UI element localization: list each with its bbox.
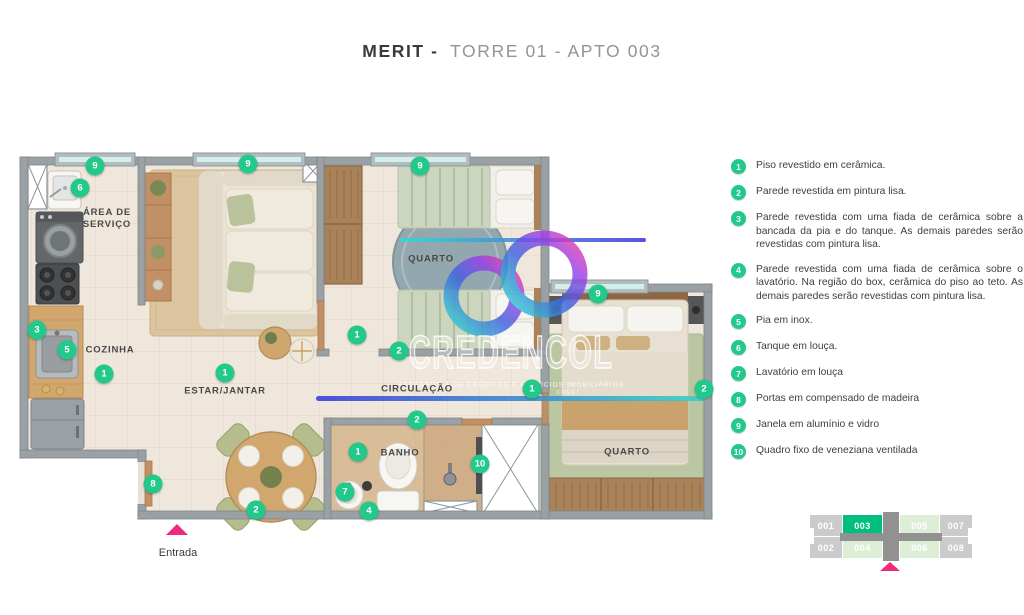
- room-label-quarto-1: QUARTO: [408, 254, 454, 265]
- entrance-label: Entrada: [159, 547, 198, 559]
- plan-marker-6-tanque: 6: [71, 179, 90, 198]
- plan-marker-1-cozinha: 1: [95, 365, 114, 384]
- legend-badge-1: 1: [731, 159, 746, 174]
- legend-text-9: Janela em alumínio e vidro: [756, 418, 879, 432]
- legend-badge-2: 2: [731, 185, 746, 200]
- keyplan-entrance-icon: [880, 562, 900, 571]
- plan-marker-8-porta-entrada: 8: [144, 475, 163, 494]
- plan-marker-2-estar-wall: 2: [247, 501, 266, 520]
- legend-item-6: 6 Tanque em louça.: [731, 340, 1023, 355]
- legend-text-4: Parede revestida com uma fiada de cerâmi…: [756, 263, 1023, 304]
- plan-marker-1-estar: 1: [216, 364, 235, 383]
- keyplan: 001 003 005 007 002 004 006 008: [810, 515, 972, 558]
- room-label-circulacao: CIRCULAÇÃO: [381, 384, 453, 395]
- legend-badge-7: 7: [731, 366, 746, 381]
- plan-marker-5-pia: 5: [58, 341, 77, 360]
- legend-item-10: 10 Quadro fixo de veneziana ventilada: [731, 444, 1023, 459]
- plan-marker-1-banho: 1: [349, 443, 368, 462]
- legend: 1 Piso revestido em cerâmica. 2 Parede r…: [731, 159, 1023, 470]
- keyplan-corridor-bar: [840, 533, 942, 541]
- legend-item-4: 4 Parede revestida com uma fiada de cerâ…: [731, 263, 1023, 304]
- plan-marker-7-lavatorio: 7: [336, 483, 355, 502]
- legend-item-8: 8 Portas em compensado de madeira: [731, 392, 1023, 407]
- legend-badge-5: 5: [731, 314, 746, 329]
- bedroom2-furniture: [547, 290, 705, 512]
- keyplan-unit-002: 002: [810, 537, 842, 558]
- legend-badge-3: 3: [731, 211, 746, 226]
- sofa: [199, 171, 317, 329]
- legend-text-5: Pia em inox.: [756, 314, 813, 328]
- legend-text-8: Portas em compensado de madeira: [756, 392, 919, 406]
- legend-badge-6: 6: [731, 340, 746, 355]
- room-label-cozinha: COZINHA: [86, 345, 135, 356]
- keyplan-right-notch: [968, 528, 976, 544]
- legend-item-5: 5 Pia em inox.: [731, 314, 1023, 329]
- legend-badge-4: 4: [731, 263, 746, 278]
- room-label-estar-jantar: ESTAR/JANTAR: [184, 386, 266, 397]
- legend-badge-10: 10: [731, 444, 746, 459]
- legend-item-2: 2 Parede revestida em pintura lisa.: [731, 185, 1023, 200]
- legend-text-3: Parede revestida com uma fiada de cerâmi…: [756, 211, 1023, 252]
- plan-marker-2-quarto2-wall: 2: [695, 380, 714, 399]
- keyplan-unit-001: 001: [810, 515, 842, 536]
- legend-text-2: Parede revestida em pintura lisa.: [756, 185, 907, 199]
- plan-marker-1-circulacao: 1: [523, 380, 542, 399]
- title-brand: MERIT -: [362, 41, 438, 61]
- legend-text-6: Tanque em louça.: [756, 340, 837, 354]
- legend-item-7: 7 Lavatório em louça: [731, 366, 1023, 381]
- page: MERIT - TORRE 01 - APTO 003: [0, 0, 1024, 615]
- plan-marker-9-living-window: 9: [239, 155, 258, 174]
- legend-text-10: Quadro fixo de veneziana ventilada: [756, 444, 917, 458]
- plan-marker-9-service-window: 9: [86, 157, 105, 176]
- keyplan-left-notch: [806, 528, 814, 544]
- legend-text-1: Piso revestido em cerâmica.: [756, 159, 885, 173]
- page-title: MERIT - TORRE 01 - APTO 003: [0, 41, 1024, 62]
- legend-badge-8: 8: [731, 392, 746, 407]
- room-label-banho: BANHO: [381, 448, 420, 459]
- plan-marker-1-hall: 1: [348, 326, 367, 345]
- entrance-arrow-icon: [166, 524, 188, 535]
- room-label-quarto-2: QUARTO: [604, 447, 650, 458]
- room-label-area-servico: ÁREA DE SERVIÇO: [75, 207, 139, 231]
- plan-marker-2-quarto1-wall: 2: [390, 342, 409, 361]
- plan-marker-4-banho-wall: 4: [360, 502, 379, 521]
- legend-item-9: 9 Janela em alumínio e vidro: [731, 418, 1023, 433]
- legend-item-1: 1 Piso revestido em cerâmica.: [731, 159, 1023, 174]
- plant-shelf: [145, 173, 171, 301]
- legend-text-7: Lavatório em louça: [756, 366, 843, 380]
- plan-marker-3-kitchen-wall: 3: [28, 321, 47, 340]
- plan-marker-9-quarto1-window: 9: [411, 157, 430, 176]
- legend-item-3: 3 Parede revestida com uma fiada de cerâ…: [731, 211, 1023, 252]
- plan-marker-10-veneziana: 10: [471, 455, 490, 474]
- plan-marker-9-quarto2-window: 9: [589, 285, 608, 304]
- legend-badge-9: 9: [731, 418, 746, 433]
- plan-marker-2-circulacao-wall: 2: [408, 411, 427, 430]
- title-subtitle: TORRE 01 - APTO 003: [450, 41, 662, 61]
